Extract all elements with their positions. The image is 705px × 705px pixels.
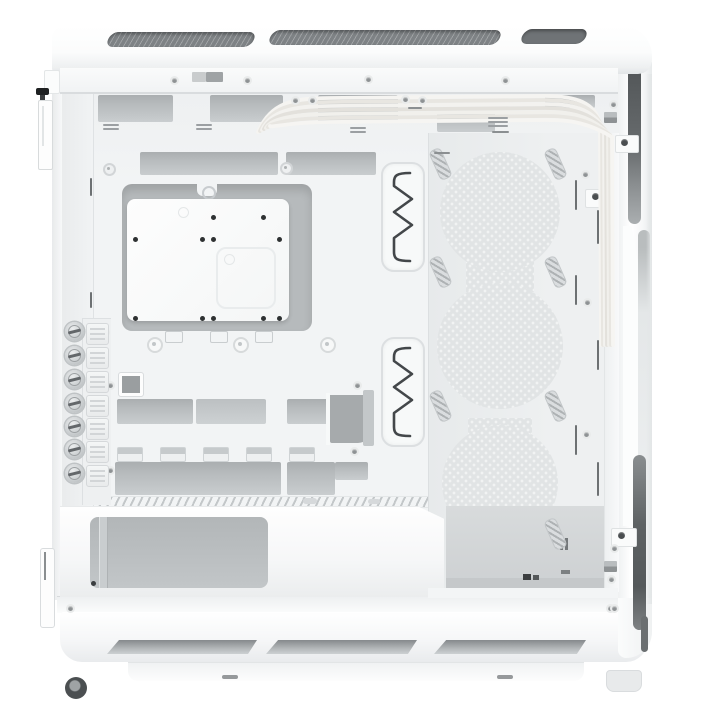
front-bracket-screw	[618, 532, 625, 539]
screw	[583, 172, 588, 177]
clip-tab	[165, 331, 183, 343]
cable-strand	[258, 96, 601, 345]
expansion-slot-cover	[86, 465, 109, 487]
vent-line	[488, 121, 508, 123]
screw	[584, 432, 589, 437]
expansion-thumbscrew	[65, 417, 84, 436]
standoff-hole	[200, 316, 205, 321]
vent-dash	[408, 107, 422, 109]
panel-seam	[597, 210, 599, 244]
screw	[612, 546, 617, 551]
rear-latch-bottom-groove	[44, 552, 46, 580]
top-vent-slot	[519, 29, 589, 44]
pc-case-product-image	[0, 0, 705, 705]
shroud-top-cutout	[335, 462, 368, 480]
standoff-hole	[211, 237, 216, 242]
clip-tab	[210, 331, 228, 343]
bottom-skirt	[60, 612, 648, 662]
screw	[612, 606, 617, 611]
top-latch	[192, 72, 223, 82]
vent-line	[488, 125, 508, 127]
floor-lip	[428, 588, 618, 598]
rear-latch-top	[38, 100, 53, 170]
bottom-vent-slot	[434, 640, 586, 654]
vent-dash	[492, 131, 509, 133]
vent-line	[103, 128, 119, 130]
cable-strand	[266, 112, 609, 345]
expansion-slot-cover	[86, 347, 109, 369]
mid-cable-cutout	[117, 399, 193, 424]
front-clip	[604, 561, 617, 572]
expansion-slot-cover	[86, 371, 109, 393]
cable-strand	[260, 100, 603, 345]
bottom-foot-rail	[128, 662, 584, 681]
screw	[585, 300, 590, 305]
panel-seam	[597, 340, 599, 370]
panel-seam	[575, 180, 577, 210]
ceiling-cutout	[98, 95, 173, 122]
front-bracket-screw	[621, 139, 628, 146]
bottom-rail	[57, 596, 647, 613]
expansion-thumbscrew	[65, 322, 84, 341]
screw	[293, 98, 298, 103]
top-latch-left	[192, 72, 206, 82]
top-latch-right	[206, 72, 223, 82]
reset-cutout	[119, 373, 143, 396]
vent-line	[196, 124, 212, 126]
shroud-top-cutout	[287, 462, 335, 495]
expansion-thumbscrew	[65, 394, 84, 413]
vent-line	[350, 131, 366, 133]
front-foot	[606, 670, 642, 692]
standoff-hole	[200, 237, 205, 242]
top-vent-slot	[105, 32, 257, 47]
vent-line	[103, 124, 119, 126]
vent-line	[196, 128, 212, 130]
standoff-ring	[320, 337, 336, 353]
rivet	[103, 163, 116, 176]
gpu-bracket-rail	[363, 390, 374, 446]
standoff-hole	[277, 316, 282, 321]
panel-seam	[90, 178, 92, 196]
screw	[420, 98, 425, 103]
psu-bay-rail	[99, 517, 108, 588]
expansion-slot-cover	[86, 323, 109, 345]
front-corner-slot	[641, 616, 648, 652]
screw	[609, 577, 614, 582]
expansion-slot-cover	[86, 441, 109, 463]
plate-ring-hole	[224, 254, 235, 265]
screw	[68, 606, 73, 611]
expansion-slot-cover	[86, 395, 109, 417]
expansion-thumbscrew	[65, 440, 84, 459]
standoff-ring	[233, 337, 249, 353]
expansion-thumbscrew	[65, 370, 84, 389]
vent-dash	[434, 152, 450, 154]
screw	[310, 98, 315, 103]
psu-bay-screw	[91, 581, 96, 586]
standoff-hole	[133, 316, 138, 321]
psu-bay-opening	[90, 517, 268, 588]
foot-pad	[222, 675, 238, 679]
vent-line	[488, 117, 508, 119]
front-dash	[561, 570, 570, 574]
front-outer-edge	[646, 74, 652, 604]
screw	[355, 383, 360, 388]
standoff-hole	[277, 237, 282, 242]
bottom-vent-slot	[107, 640, 257, 654]
cpu-cutout-tab-ring	[202, 186, 216, 200]
screw	[172, 78, 177, 83]
top-vent-slot	[267, 30, 503, 45]
expansion-slot-cover	[86, 418, 109, 440]
rear-caster-foot	[65, 677, 87, 699]
standoff-hole	[261, 215, 266, 220]
bottom-vent-slot	[266, 640, 417, 654]
panel-seam	[575, 275, 577, 305]
screw	[352, 449, 357, 454]
clip-tab	[255, 331, 273, 343]
sleeved-cable-bundle	[248, 86, 620, 366]
screw	[245, 78, 250, 83]
standoff-hole	[211, 215, 216, 220]
screw	[403, 97, 408, 102]
mid-cable-cutout	[287, 399, 329, 424]
standoff-hole	[211, 316, 216, 321]
rear-thumbscrew-head	[36, 88, 49, 95]
expansion-thumbscrew	[65, 464, 84, 483]
cable-strand	[264, 108, 607, 345]
floor-connector	[523, 574, 531, 580]
shroud-top-cutout	[115, 462, 281, 495]
cable-strand	[262, 104, 605, 345]
plate-ring-hole	[178, 207, 189, 218]
standoff-hole	[133, 237, 138, 242]
cable-clip-slot	[289, 447, 315, 462]
cable-clip-slot	[203, 447, 229, 462]
shroud-oval-hole	[368, 499, 380, 504]
cable-clip-slot	[246, 447, 272, 462]
screw	[611, 102, 616, 107]
panel-seam	[575, 425, 577, 455]
floor-connector	[533, 575, 539, 580]
rivet	[280, 162, 293, 175]
rear-latch-bottom	[40, 548, 55, 628]
panel-seam	[597, 462, 599, 496]
vent-line	[350, 127, 366, 129]
panel-seam	[90, 292, 92, 308]
screw	[366, 77, 371, 82]
standoff-hole	[261, 316, 266, 321]
screw	[503, 78, 508, 83]
rear-latch-top-groove	[42, 106, 44, 146]
cable-clip-slot	[160, 447, 186, 462]
expansion-thumbscrew	[65, 346, 84, 365]
foot-pad	[497, 675, 513, 679]
shroud-oval-hole	[303, 498, 317, 504]
mid-cable-cutout	[196, 399, 266, 424]
standoff-ring	[147, 337, 163, 353]
cable-clip-slot	[117, 447, 143, 462]
